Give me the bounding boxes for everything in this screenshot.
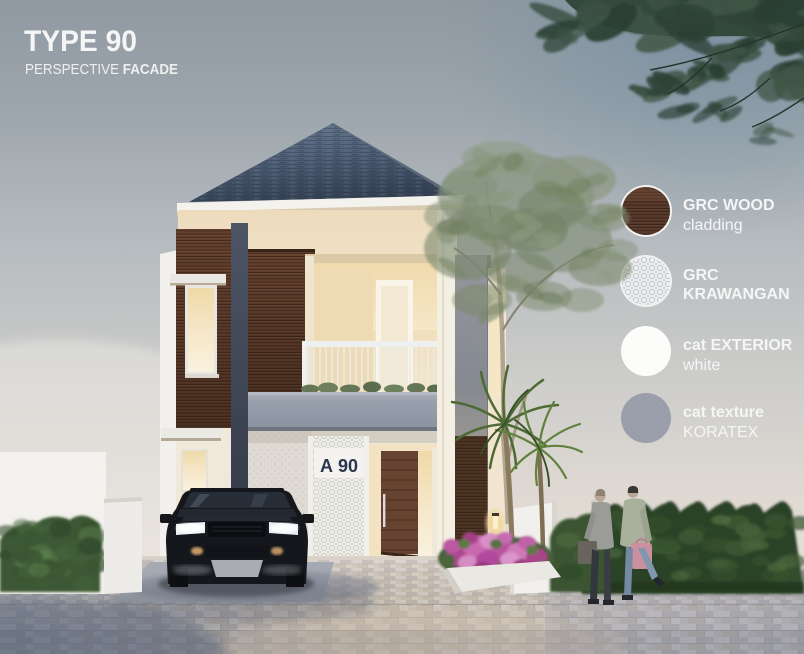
svg-text:white: white: [682, 357, 720, 374]
svg-text:GRC WOOD: GRC WOOD: [683, 197, 775, 214]
svg-text:KORATEX: KORATEX: [683, 424, 759, 441]
svg-text:PERSPECTIVE FACADE: PERSPECTIVE FACADE: [25, 61, 178, 78]
svg-text:cladding: cladding: [683, 217, 743, 234]
svg-text:KRAWANGAN: KRAWANGAN: [683, 286, 790, 303]
svg-text:A: A: [320, 456, 333, 476]
svg-text:GRC: GRC: [683, 267, 719, 284]
svg-text:cat EXTERIOR: cat EXTERIOR: [683, 337, 793, 354]
svg-text:TYPE 90: TYPE 90: [24, 25, 137, 58]
svg-text:90: 90: [338, 456, 358, 476]
svg-text:cat texture: cat texture: [683, 404, 764, 421]
